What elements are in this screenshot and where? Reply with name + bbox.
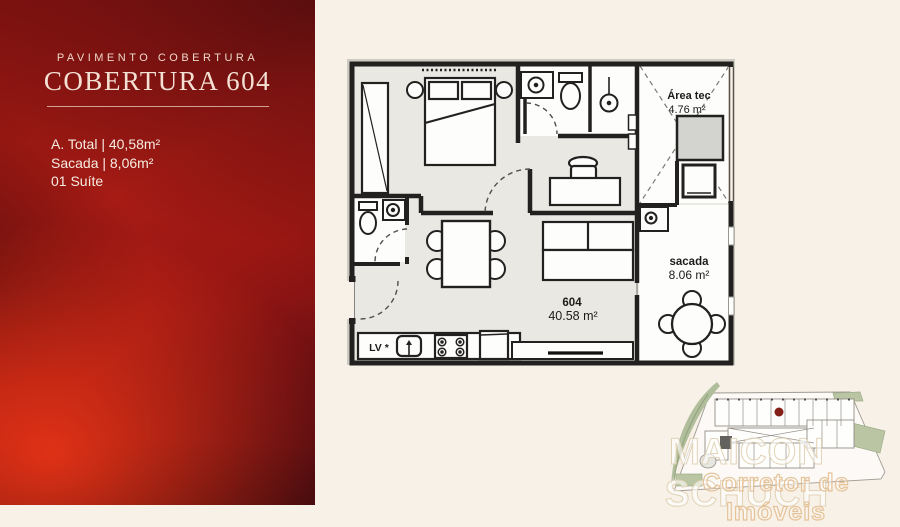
page-title: COBERTURA 604 [0,66,315,97]
area-tec-equipment [677,116,723,160]
dishwasher-label: LV * [369,342,390,354]
area-tec-area: 4.76 m² [668,104,706,116]
sofa [543,222,633,280]
unit-location-dot [775,408,784,417]
watermark-subtitle: Corretor de Imóveis [660,469,892,527]
presentation-slide: { "panel": { "eyebrow": "PAVIMENTO COBER… [0,0,900,505]
stat-suites: 01 Suíte [51,172,160,191]
title-divider [47,106,269,107]
info-panel: PAVIMENTO COBERTURA COBERTURA 604 A. Tot… [0,0,315,505]
sacada-label: sacada [669,256,709,268]
sacada-area: 8.06 m² [669,268,710,282]
floor-plan: Área tec 4.76 m² sacada 8.06 m² 604 40.5… [345,57,735,367]
bed [422,70,498,165]
stat-total-area: A. Total | 40,58m² [51,135,160,154]
unit-stats: A. Total | 40,58m² Sacada | 8,06m² 01 Su… [51,135,160,191]
area-tec-label: Área tec [667,89,710,102]
balcony-grill [640,207,668,231]
wardrobe [362,83,388,193]
tv-sideboard [512,342,633,359]
panel-eyebrow: PAVIMENTO COBERTURA [0,52,315,64]
nightstand-right [496,82,512,98]
nightstand-left [407,82,423,98]
unit-number: 604 [562,297,582,309]
unit-area: 40.58 m² [548,309,597,323]
stat-balcony-area: Sacada | 8,06m² [51,154,160,173]
